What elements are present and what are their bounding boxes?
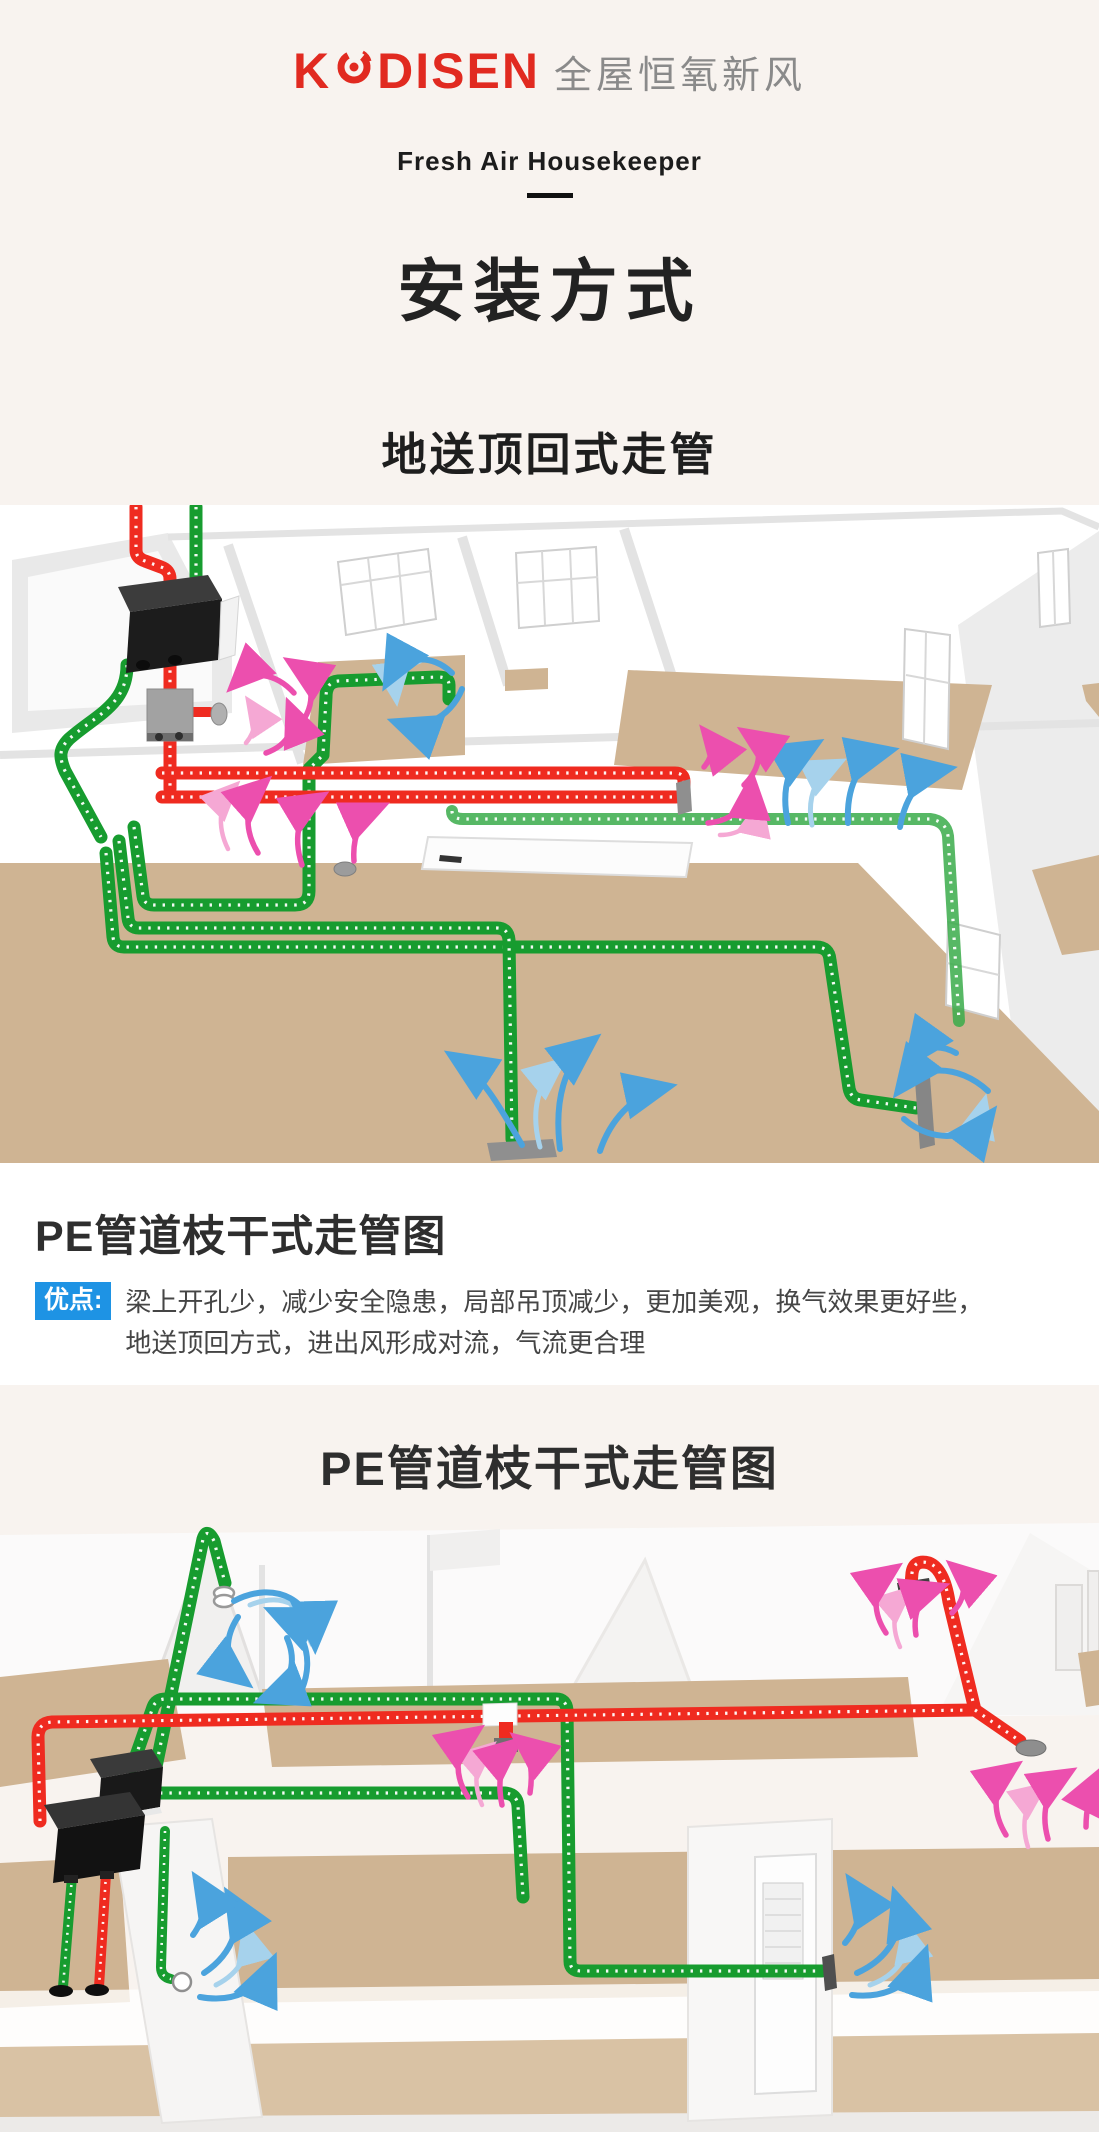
advantage-line1: 梁上开孔少，减少安全隐患，局部吊顶减少，更加美观，换气效果更好些， [125,1282,983,1323]
logo-text-disen: DISEN [377,42,540,100]
advantage-text: 梁上开孔少，减少安全隐患，局部吊顶减少，更加美观，换气效果更好些， 地送顶回方式… [125,1282,983,1364]
page-title: 安装方式 [0,236,1099,335]
section1-heading: 地送顶回式走管 [0,418,1099,483]
advantage-line2: 地送顶回方式，进出风形成对流，气流更合理 [125,1323,983,1364]
logo-text-k: K [293,42,331,100]
brand-logo: K DISEN [293,42,540,100]
diagram-floor-supply-ceiling-return [0,505,1099,1182]
diagram-pe-branch-trunk [0,1505,1099,2132]
section2-heading: PE管道枝干式走管图 [0,1430,1099,1499]
diagram1-caption: PE管道枝干式走管图 优点: 梁上开孔少，减少安全隐患，局部吊顶减少，更加美观，… [0,1182,1099,1364]
brand-header: K DISEN 全屋恒氧新风 [0,42,1099,100]
brand-subtitle-en: Fresh Air Housekeeper [0,146,1099,177]
divider-dash [527,193,573,198]
logo-swirl-o-icon [332,42,376,100]
advantage-badge: 优点: [35,1282,111,1320]
product-detail-page: K DISEN 全屋恒氧新风 Fresh Air Housekeeper 安装方… [0,0,1099,2132]
section1-panel: PE管道枝干式走管图 优点: 梁上开孔少，减少安全隐患，局部吊顶减少，更加美观，… [0,505,1099,1385]
advantages-block: 优点: 梁上开孔少，减少安全隐患，局部吊顶减少，更加美观，换气效果更好些， 地送… [35,1282,1064,1364]
caption-title: PE管道枝干式走管图 [35,1202,1064,1264]
brand-tagline: 全屋恒氧新风 [554,44,806,99]
